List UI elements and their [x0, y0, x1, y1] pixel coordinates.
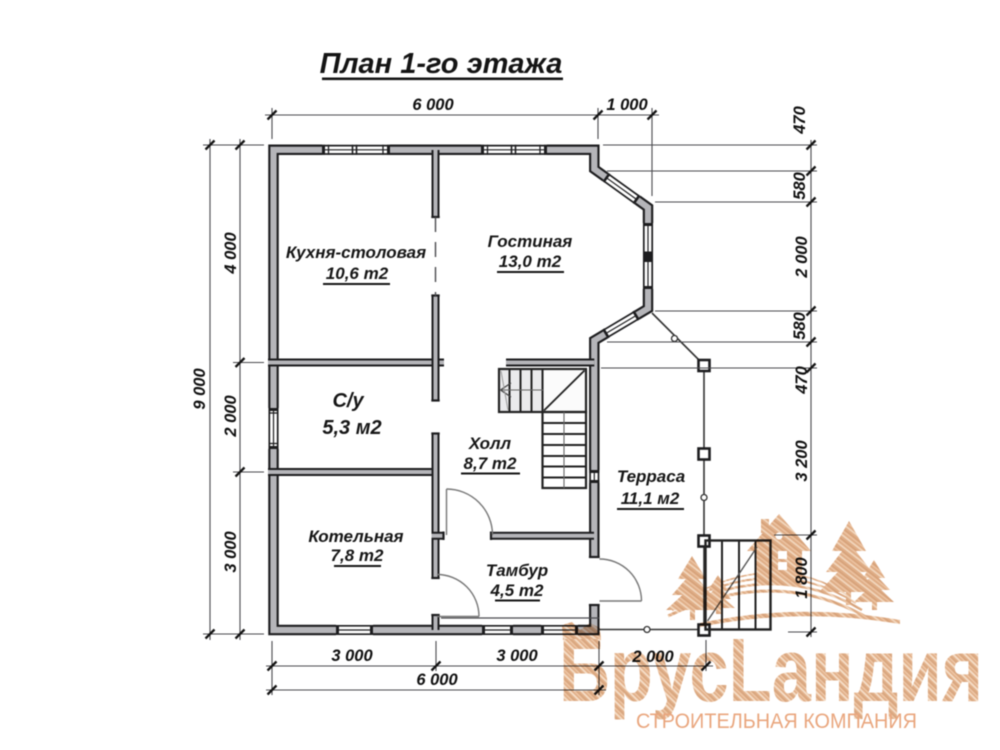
svg-text:3 200: 3 200: [793, 440, 811, 482]
svg-text:1 000: 1 000: [606, 96, 648, 114]
svg-text:470: 470: [791, 105, 809, 134]
svg-text:3 000: 3 000: [496, 647, 538, 665]
svg-text:580: 580: [791, 311, 809, 339]
svg-text:13,0 m2: 13,0 m2: [499, 252, 562, 271]
svg-text:СТРОИТЕЛЬНАЯ КОМПАНИЯ: СТРОИТЕЛЬНАЯ КОМПАНИЯ: [636, 710, 917, 733]
svg-text:7,8 m2: 7,8 m2: [331, 546, 384, 565]
svg-text:Холл: Холл: [468, 434, 512, 453]
svg-text:Кухня-столовая: Кухня-столовая: [286, 243, 426, 262]
svg-text:6 000: 6 000: [412, 96, 454, 114]
svg-text:10,6 m2: 10,6 m2: [326, 264, 389, 283]
svg-text:6 000: 6 000: [416, 671, 458, 689]
svg-text:Тамбур: Тамбур: [486, 561, 548, 580]
svg-text:580: 580: [791, 171, 809, 199]
svg-text:План 1-го этажа: План 1-го этажа: [320, 48, 563, 80]
svg-text:2 000: 2 000: [793, 236, 811, 279]
svg-text:3 000: 3 000: [222, 531, 240, 573]
svg-text:9 000: 9 000: [191, 368, 209, 410]
svg-text:С/у: С/у: [332, 390, 364, 412]
svg-text:8,7 m2: 8,7 m2: [464, 454, 517, 473]
svg-text:11,1 м2: 11,1 м2: [621, 489, 680, 508]
svg-text:2 000: 2 000: [222, 395, 240, 438]
svg-text:Котельная: Котельная: [308, 527, 403, 546]
svg-text:3 000: 3 000: [331, 647, 373, 665]
svg-text:4,5 m2: 4,5 m2: [490, 581, 544, 600]
svg-text:470: 470: [793, 365, 811, 394]
svg-text:5,3 м2: 5,3 м2: [322, 417, 381, 439]
svg-text:БрусLандия: БрусLандия: [559, 620, 983, 720]
svg-text:Гостиная: Гостиная: [488, 232, 573, 251]
svg-text:Терраса: Терраса: [617, 467, 685, 486]
svg-text:4 000: 4 000: [222, 232, 240, 275]
